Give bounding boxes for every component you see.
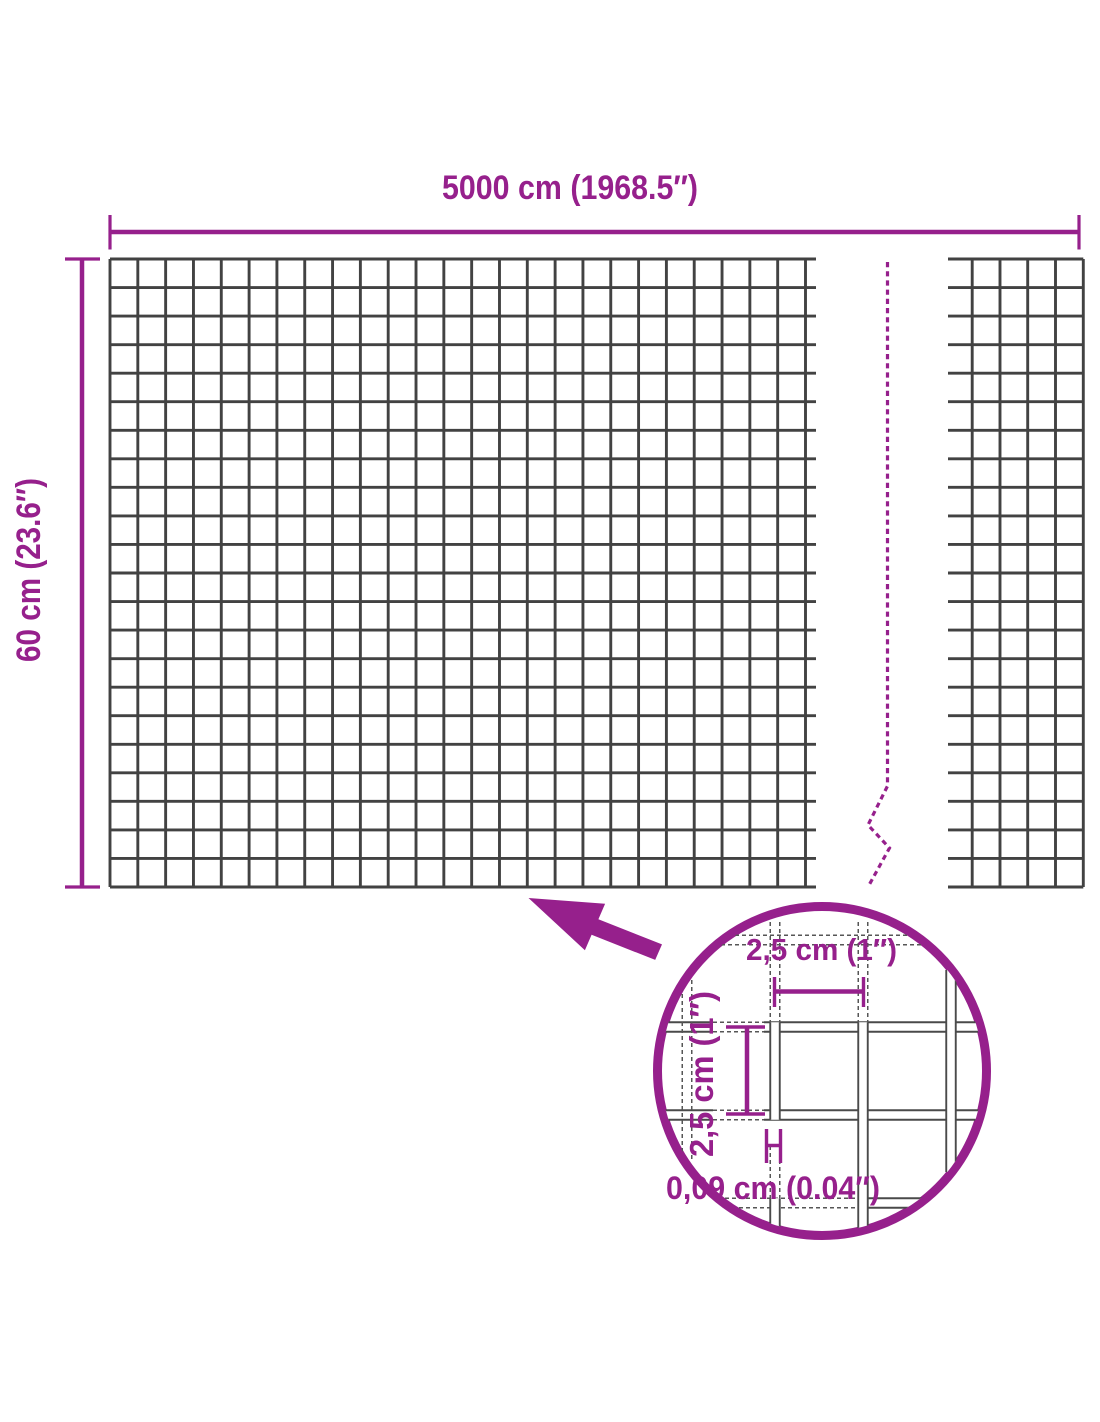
svg-text:2,5 cm (1″): 2,5 cm (1″) [683, 991, 720, 1157]
svg-text:2,5 cm (1″): 2,5 cm (1″) [746, 932, 897, 967]
svg-text:5000 cm (1968.5″): 5000 cm (1968.5″) [442, 169, 698, 207]
svg-text:0,09 cm (0.04″): 0,09 cm (0.04″) [666, 1170, 880, 1206]
svg-text:60 cm (23.6″): 60 cm (23.6″) [10, 478, 48, 662]
